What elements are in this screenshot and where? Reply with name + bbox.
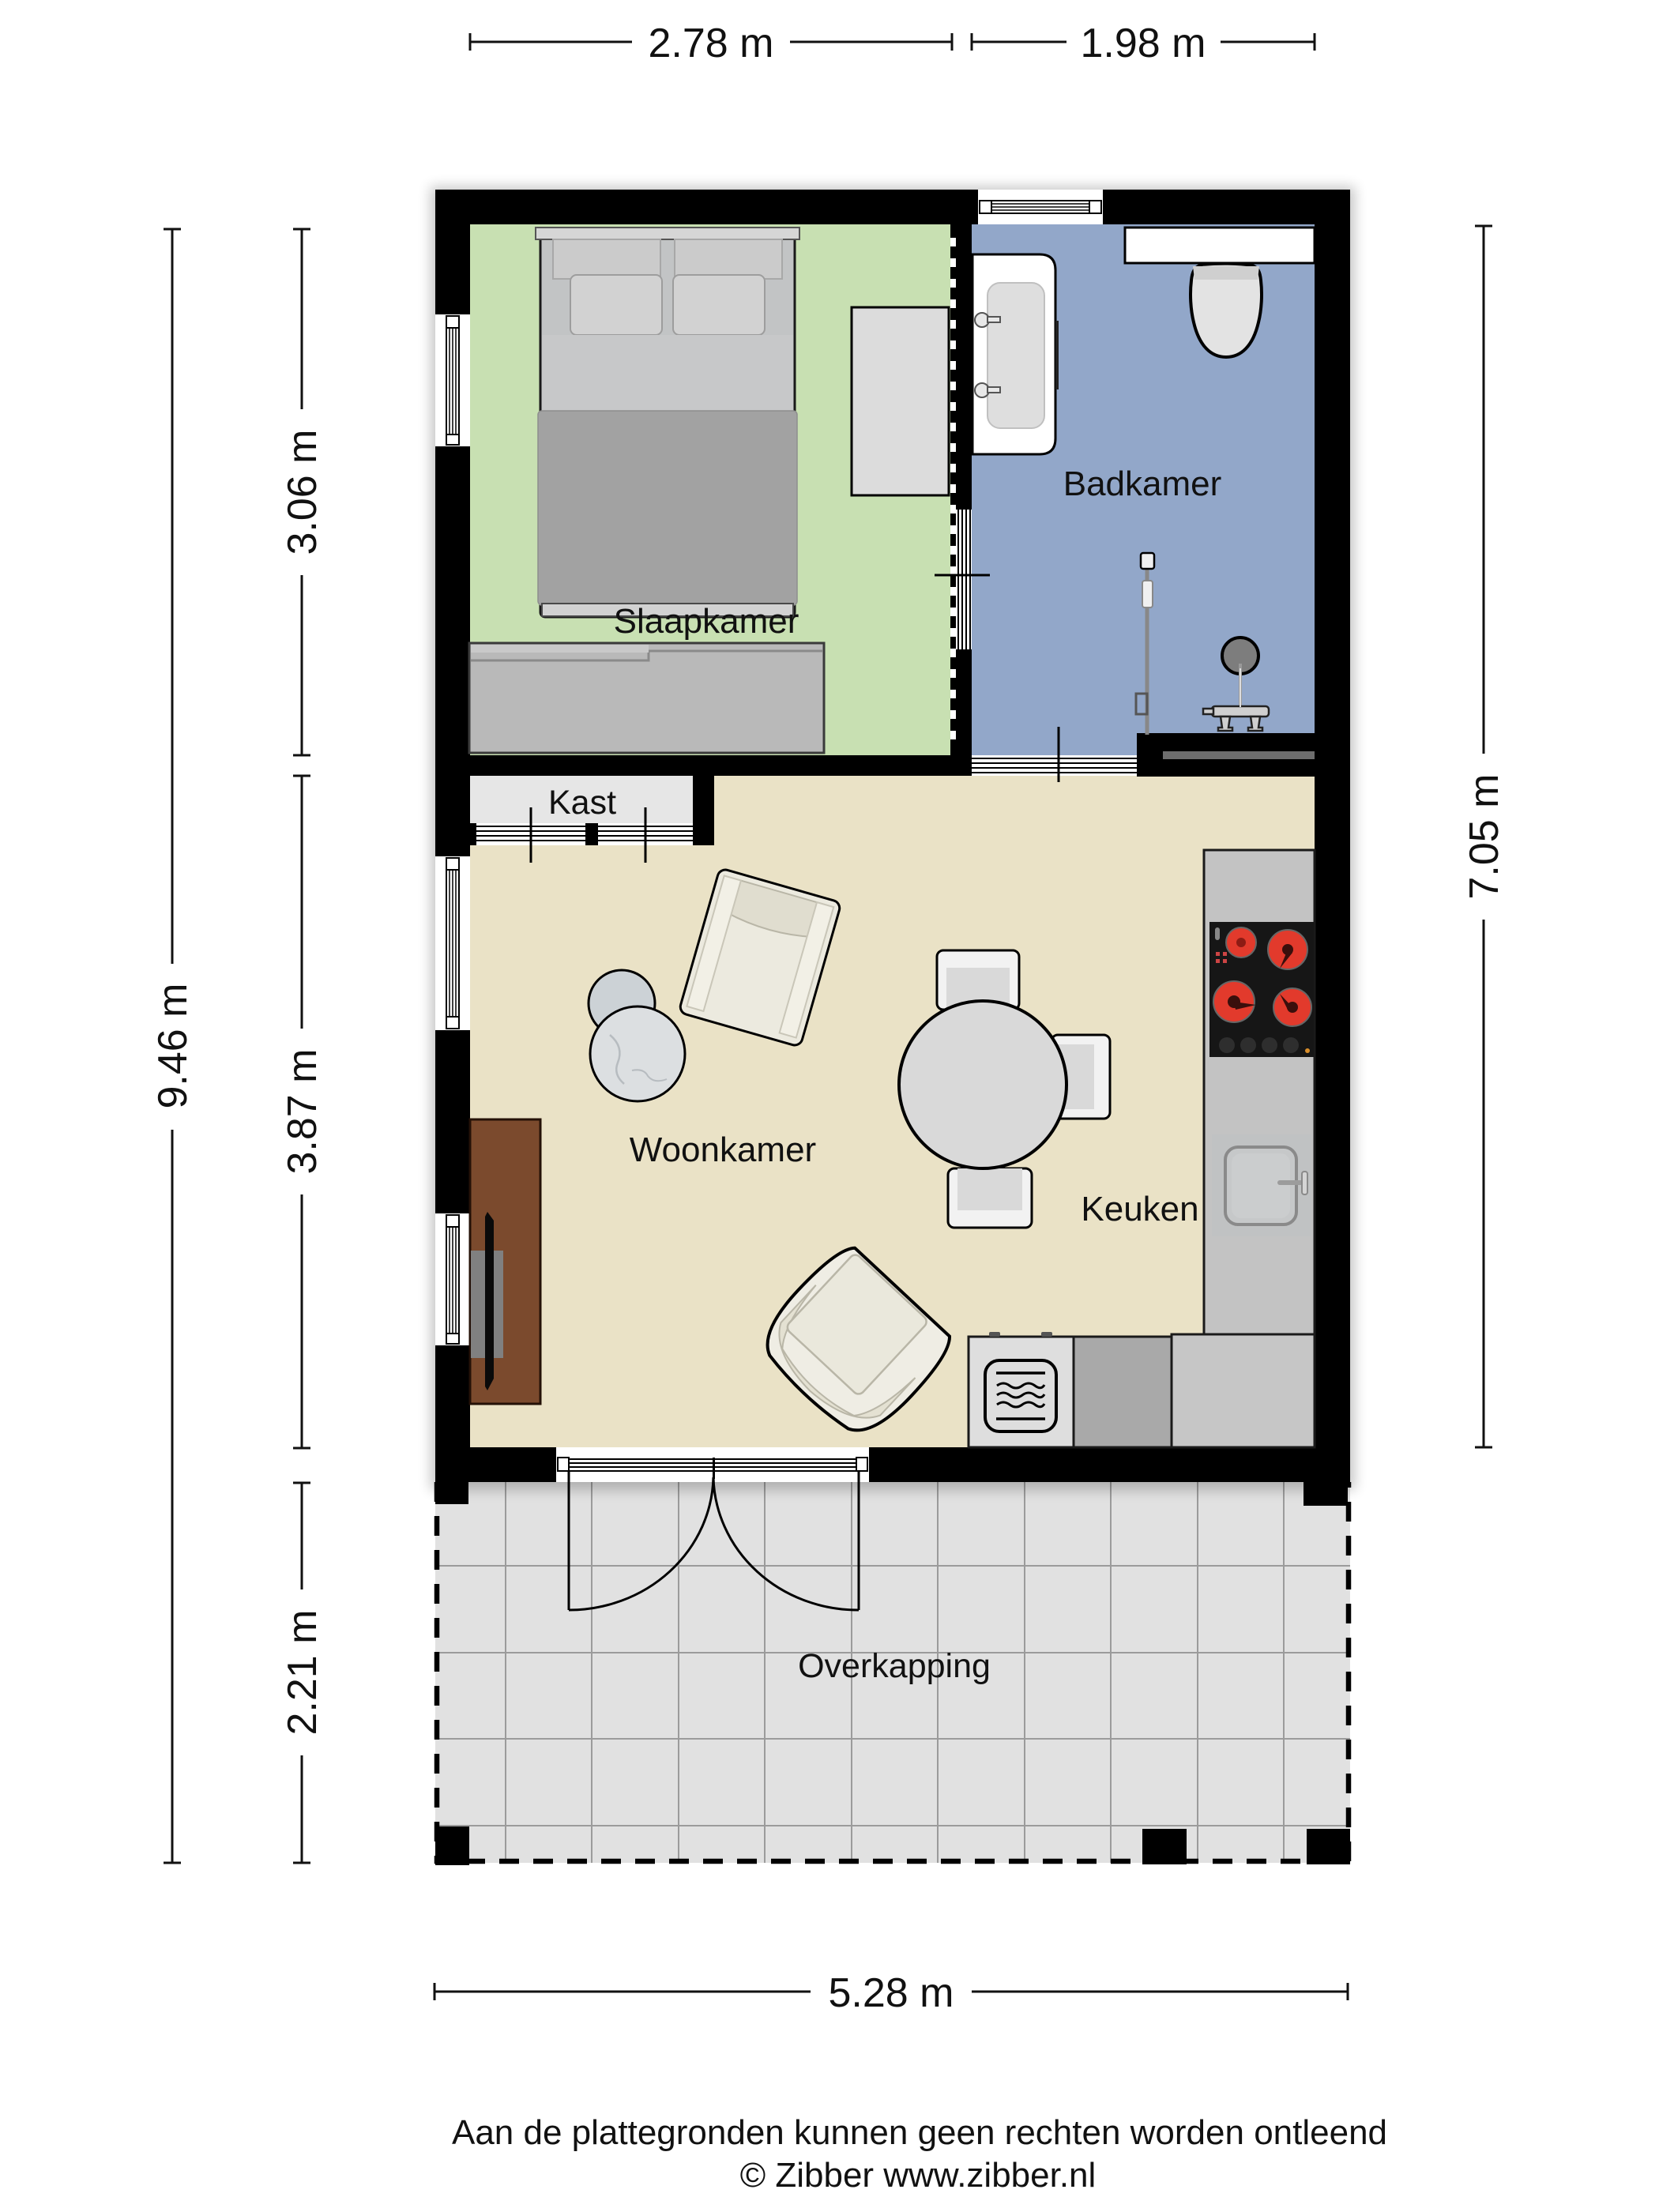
svg-text:3.87 m: 3.87 m bbox=[280, 1049, 325, 1175]
svg-text:2.21 m: 2.21 m bbox=[280, 1610, 325, 1736]
svg-text:Slaapkamer: Slaapkamer bbox=[614, 602, 799, 641]
svg-text:© Zibber www.zibber.nl: © Zibber www.zibber.nl bbox=[740, 2156, 1097, 2195]
svg-text:Woonkamer: Woonkamer bbox=[630, 1130, 816, 1169]
svg-text:Overkapping: Overkapping bbox=[798, 1647, 991, 1685]
svg-text:Kast: Kast bbox=[548, 784, 616, 822]
svg-text:Keuken: Keuken bbox=[1081, 1190, 1198, 1228]
svg-text:3.06 m: 3.06 m bbox=[280, 430, 325, 555]
svg-text:Aan de plattegronden kunnen ge: Aan de plattegronden kunnen geen rechten… bbox=[452, 2113, 1387, 2152]
svg-text:1.98 m: 1.98 m bbox=[1081, 21, 1206, 66]
svg-text:Badkamer: Badkamer bbox=[1063, 465, 1222, 503]
svg-text:2.78 m: 2.78 m bbox=[649, 21, 774, 66]
svg-text:9.46 m: 9.46 m bbox=[150, 984, 196, 1109]
svg-text:7.05 m: 7.05 m bbox=[1461, 774, 1507, 900]
svg-text:5.28 m: 5.28 m bbox=[829, 1970, 954, 2016]
